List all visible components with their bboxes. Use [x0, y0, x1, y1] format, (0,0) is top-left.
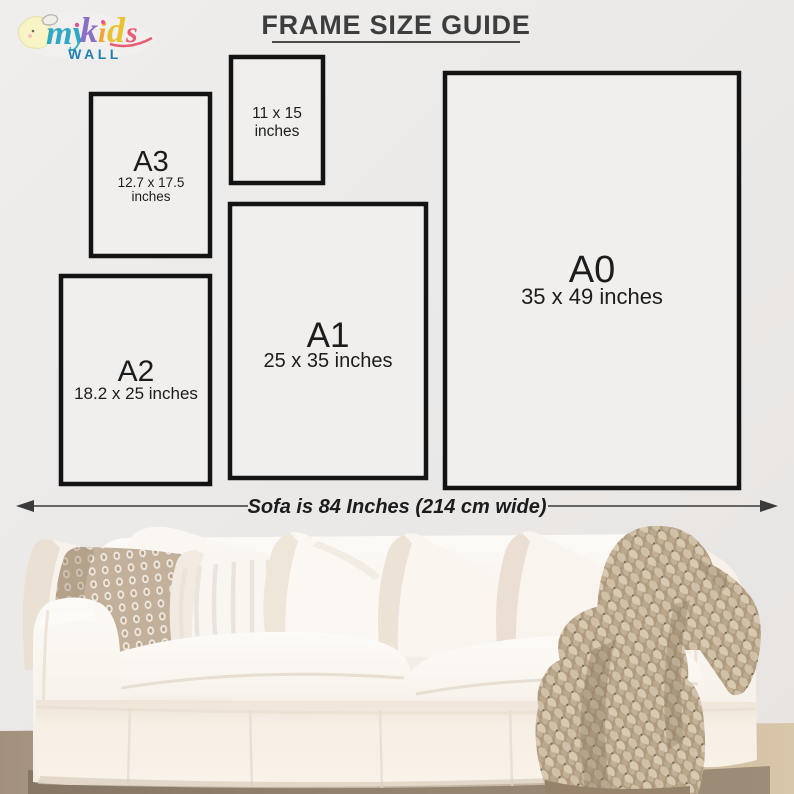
svg-text:18.2 x 25 inches: 18.2 x 25 inches — [74, 384, 198, 403]
svg-text:A3: A3 — [133, 146, 168, 178]
svg-text:25 x 35 inches: 25 x 35 inches — [264, 350, 393, 372]
svg-text:d: d — [107, 10, 126, 50]
svg-text:FRAME SIZE GUIDE: FRAME SIZE GUIDE — [261, 10, 530, 40]
svg-text:35 x 49 inches: 35 x 49 inches — [521, 284, 663, 309]
svg-text:Sofa is 84 Inches (214 cm wide: Sofa is 84 Inches (214 cm wide) — [247, 496, 546, 518]
svg-text:WALL: WALL — [68, 46, 122, 62]
svg-text:11 x 15: 11 x 15 — [252, 105, 302, 122]
svg-text:k: k — [80, 10, 98, 50]
svg-text:inches: inches — [131, 189, 170, 204]
svg-text:12.7 x 17.5: 12.7 x 17.5 — [118, 175, 185, 190]
svg-text:inches: inches — [255, 123, 300, 140]
